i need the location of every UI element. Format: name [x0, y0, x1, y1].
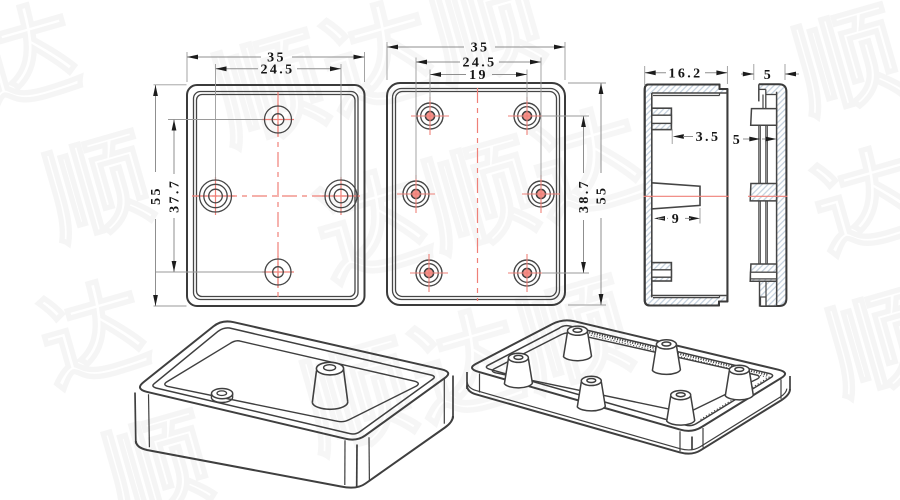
svg-text:3.5: 3.5 [696, 130, 721, 145]
svg-text:24.5: 24.5 [260, 62, 294, 77]
svg-text:5: 5 [764, 68, 773, 83]
svg-text:37.7: 37.7 [168, 179, 183, 213]
svg-text:16.2: 16.2 [668, 66, 702, 81]
svg-text:55: 55 [595, 186, 610, 205]
svg-text:38.7: 38.7 [577, 179, 592, 213]
svg-text:9: 9 [672, 212, 681, 227]
svg-text:55: 55 [149, 186, 164, 205]
svg-text:19: 19 [469, 68, 488, 83]
svg-text:35: 35 [471, 41, 490, 56]
svg-text:5: 5 [733, 133, 742, 148]
